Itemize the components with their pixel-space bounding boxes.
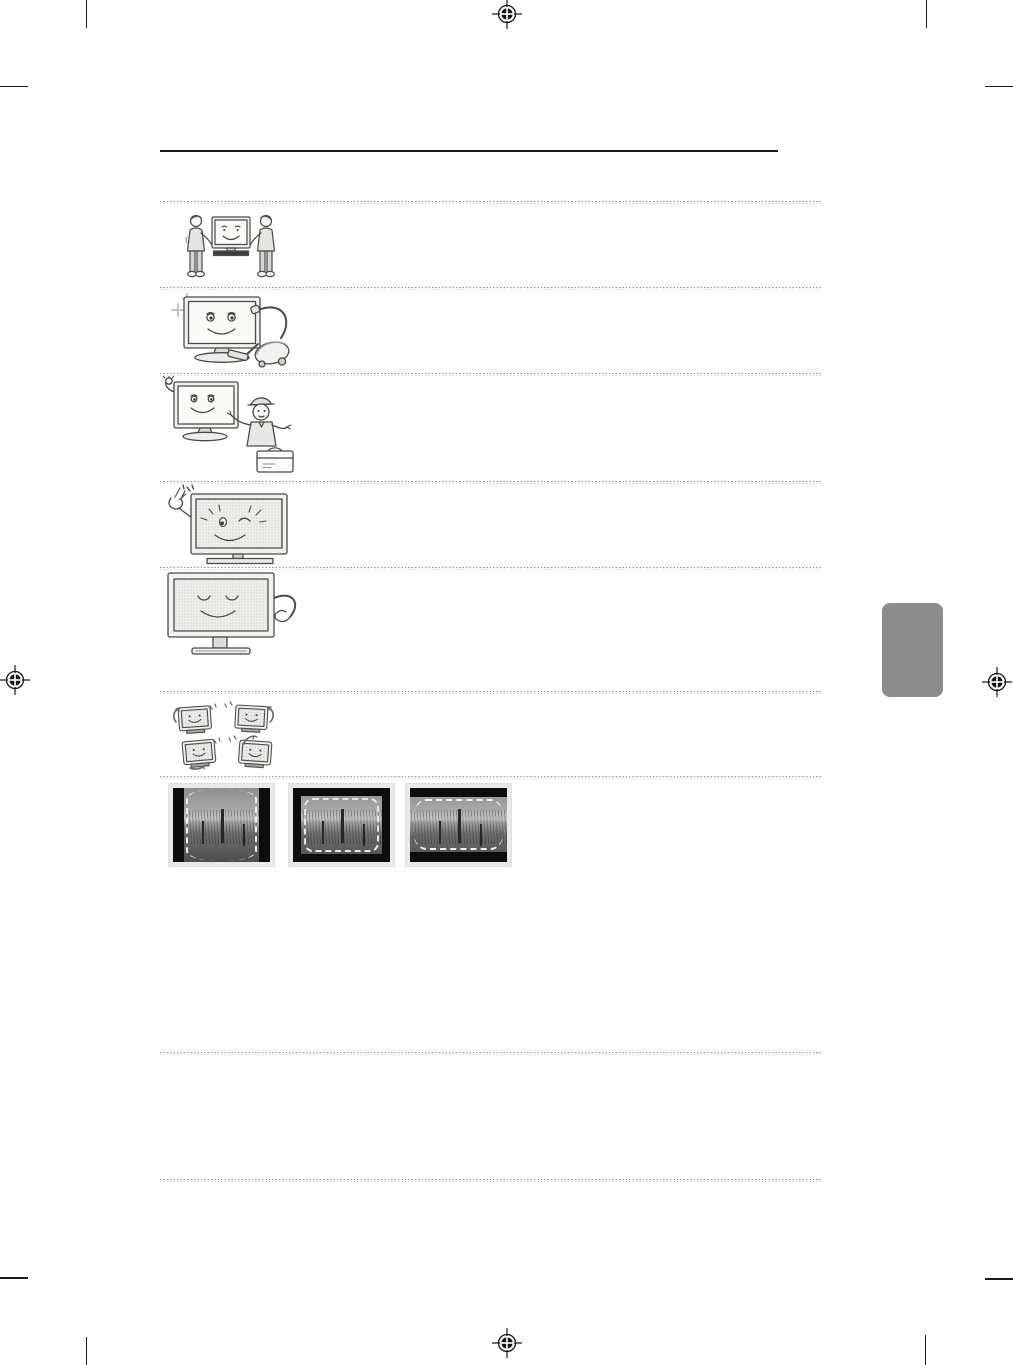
patting-arm bbox=[272, 596, 295, 622]
registration-mark-icon bbox=[982, 667, 1012, 697]
four-tvs-rotation-arrows-illustration bbox=[170, 700, 292, 770]
crop-mark-bottom-right-vertical bbox=[925, 1335, 927, 1365]
tv bbox=[212, 217, 250, 256]
smiling-tv-patted-by-hand-illustration bbox=[166, 571, 304, 661]
tv bbox=[191, 494, 287, 564]
black-top-bar bbox=[410, 788, 507, 797]
dashed-burn-outline bbox=[186, 789, 257, 861]
field-photo bbox=[293, 788, 390, 862]
registration-mark-icon bbox=[0, 665, 30, 695]
registration-mark-icon bbox=[492, 1328, 522, 1358]
manual-page bbox=[0, 0, 1013, 1365]
snapping-hand bbox=[169, 485, 194, 520]
dashed-burn-outline bbox=[412, 799, 505, 850]
section-heading-rule bbox=[160, 150, 778, 152]
crop-mark-top-left-vertical bbox=[86, 0, 88, 28]
tv bbox=[168, 573, 274, 654]
field-photo bbox=[410, 788, 507, 862]
dotted-separator bbox=[160, 1179, 823, 1182]
chapter-side-tab bbox=[882, 603, 943, 697]
crop-mark-top-left-horizontal bbox=[0, 86, 28, 88]
person-right bbox=[249, 216, 275, 277]
crop-mark-top-right-horizontal bbox=[985, 86, 1013, 88]
dotted-separator bbox=[160, 1052, 823, 1055]
person-left bbox=[186, 216, 213, 277]
black-bottom-bar bbox=[410, 852, 507, 862]
tv-cleaned-with-vacuum-illustration bbox=[168, 291, 300, 371]
crop-mark-top-right-vertical bbox=[926, 0, 928, 28]
burn-in-example-letterbox bbox=[405, 783, 512, 867]
dotted-separator bbox=[160, 567, 823, 570]
crop-mark-bottom-left-vertical bbox=[86, 1337, 88, 1365]
black-side-bar bbox=[259, 788, 270, 862]
black-side-bar bbox=[173, 788, 184, 862]
tv-with-service-technician-illustration bbox=[160, 376, 298, 482]
dotted-separator bbox=[160, 776, 823, 779]
burn-in-example-windowbox bbox=[288, 783, 395, 867]
crop-mark-bottom-right-horizontal bbox=[985, 1278, 1013, 1280]
burn-in-example-pillarbox bbox=[168, 783, 275, 867]
dotted-separator bbox=[160, 691, 823, 694]
field-photo bbox=[173, 788, 270, 862]
dotted-separator bbox=[160, 201, 823, 204]
dashed-burn-outline bbox=[304, 798, 379, 852]
crop-mark-bottom-left-horizontal bbox=[0, 1277, 28, 1279]
dotted-separator bbox=[160, 287, 823, 290]
registration-mark-icon bbox=[492, 0, 522, 29]
two-people-carrying-tv-illustration bbox=[183, 210, 279, 282]
tv bbox=[163, 376, 238, 441]
winking-tv-with-snapping-hand-illustration bbox=[163, 484, 291, 566]
